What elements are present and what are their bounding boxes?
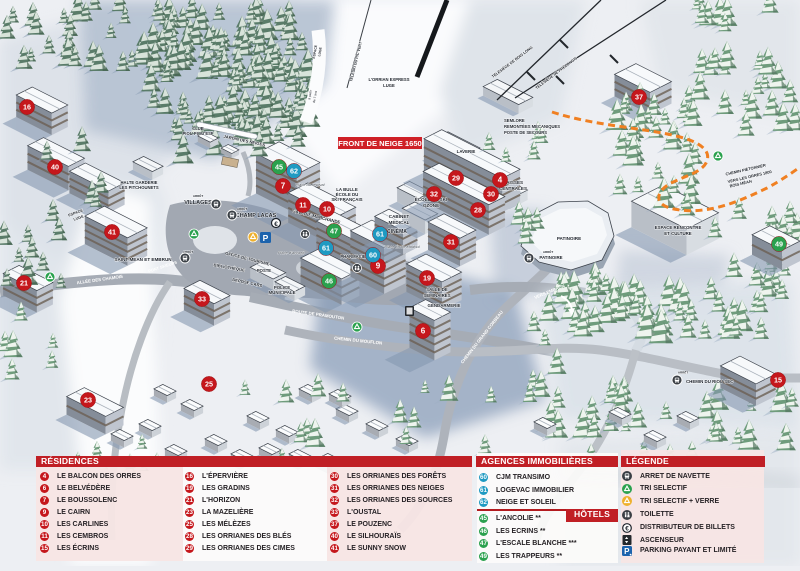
svg-text:P: P: [624, 547, 630, 556]
svg-text:25: 25: [205, 380, 213, 389]
svg-text:CINÉMA: CINÉMA: [387, 227, 407, 235]
svg-text:41: 41: [108, 228, 116, 237]
svg-text:19: 19: [423, 274, 431, 283]
svg-text:CHAMP LACAS: CHAMP LACAS: [236, 213, 277, 219]
svg-text:POSTE DE SECOURS: POSTE DE SECOURS: [504, 130, 547, 135]
svg-text:23: 23: [84, 396, 92, 405]
svg-text:OZONE: OZONE: [423, 203, 439, 208]
svg-text:4: 4: [498, 176, 503, 185]
svg-text:REMONTÉES MÉCANIQUES: REMONTÉES MÉCANIQUES: [504, 124, 560, 129]
svg-text:ARRÊT: ARRÊT: [193, 193, 204, 198]
svg-text:LUGE: LUGE: [383, 83, 395, 88]
svg-text:9: 9: [376, 262, 381, 271]
svg-text:P: P: [263, 233, 269, 243]
svg-text:40: 40: [51, 163, 59, 172]
svg-text:CHEMIN DU RIOU SEC: CHEMIN DU RIOU SEC: [686, 379, 734, 384]
svg-text:Place Émile Modoul: Place Émile Modoul: [384, 244, 419, 249]
svg-text:€: €: [625, 525, 629, 532]
svg-text:GENDARMERIE: GENDARMERIE: [428, 303, 461, 308]
svg-text:SALLE DE: SALLE DE: [426, 287, 448, 292]
svg-text:33: 33: [198, 295, 206, 304]
svg-text:LAVERIE: LAVERIE: [457, 149, 476, 154]
svg-text:30: 30: [487, 190, 495, 199]
svg-text:28: 28: [474, 206, 482, 215]
svg-text:ARRÊT: ARRÊT: [543, 249, 554, 254]
svg-text:MÉDICAL: MÉDICAL: [389, 218, 410, 225]
svg-text:MUNICIPALE: MUNICIPALE: [269, 290, 296, 295]
svg-text:46: 46: [325, 277, 333, 286]
svg-text:FRONT DE NEIGE 1650: FRONT DE NEIGE 1650: [338, 139, 422, 148]
svg-text:ARRÊT: ARRÊT: [678, 370, 689, 375]
svg-text:10: 10: [323, 205, 331, 214]
svg-text:15: 15: [774, 376, 782, 385]
svg-text:PIOU PIOU ESF: PIOU PIOU ESF: [183, 131, 214, 136]
svg-text:49: 49: [775, 240, 783, 249]
svg-text:PATINOIRE: PATINOIRE: [557, 236, 581, 241]
svg-text:PATINOIRE: PATINOIRE: [539, 255, 562, 260]
svg-text:SÉMINAIRES: SÉMINAIRES: [423, 293, 450, 298]
svg-text:ET CULTURE: ET CULTURE: [664, 231, 692, 236]
svg-text:CABINET: CABINET: [389, 214, 410, 219]
svg-text:VILLAGES: VILLAGES: [184, 200, 212, 206]
svg-text:6: 6: [421, 327, 426, 336]
svg-text:SAINT MEAN ET EMBRUN: SAINT MEAN ET EMBRUN: [114, 257, 172, 262]
svg-text:€: €: [274, 221, 278, 228]
svg-text:ESPACE RENCONTRE: ESPACE RENCONTRE: [655, 225, 702, 230]
svg-text:61: 61: [322, 244, 330, 253]
svg-text:62: 62: [290, 167, 298, 176]
svg-text:ARRÊT: ARRÊT: [237, 206, 248, 211]
svg-text:Place du festival: Place du festival: [295, 182, 324, 187]
svg-text:PHARMACIE: PHARMACIE: [340, 254, 366, 259]
svg-text:31: 31: [447, 238, 455, 247]
svg-text:7: 7: [281, 182, 286, 191]
svg-text:21: 21: [20, 279, 28, 288]
svg-text:SEMLORE: SEMLORE: [504, 118, 525, 123]
svg-text:32: 32: [430, 190, 438, 199]
svg-text:16: 16: [23, 103, 31, 112]
svg-text:37: 37: [635, 93, 643, 102]
svg-text:60: 60: [369, 251, 377, 260]
svg-text:L'ORRIAN EXPRESS: L'ORRIAN EXPRESS: [368, 77, 409, 82]
svg-text:29: 29: [452, 174, 460, 183]
svg-text:45: 45: [275, 163, 283, 172]
svg-text:SKI FRANÇAIS: SKI FRANÇAIS: [331, 197, 362, 202]
svg-text:POSTE: POSTE: [257, 268, 271, 273]
svg-text:LES PITCHOUNETS: LES PITCHOUNETS: [119, 185, 159, 190]
svg-text:47: 47: [330, 227, 338, 236]
svg-text:61: 61: [376, 230, 384, 239]
svg-text:Place d'accueil: Place d'accueil: [278, 250, 305, 255]
svg-text:11: 11: [299, 201, 307, 210]
